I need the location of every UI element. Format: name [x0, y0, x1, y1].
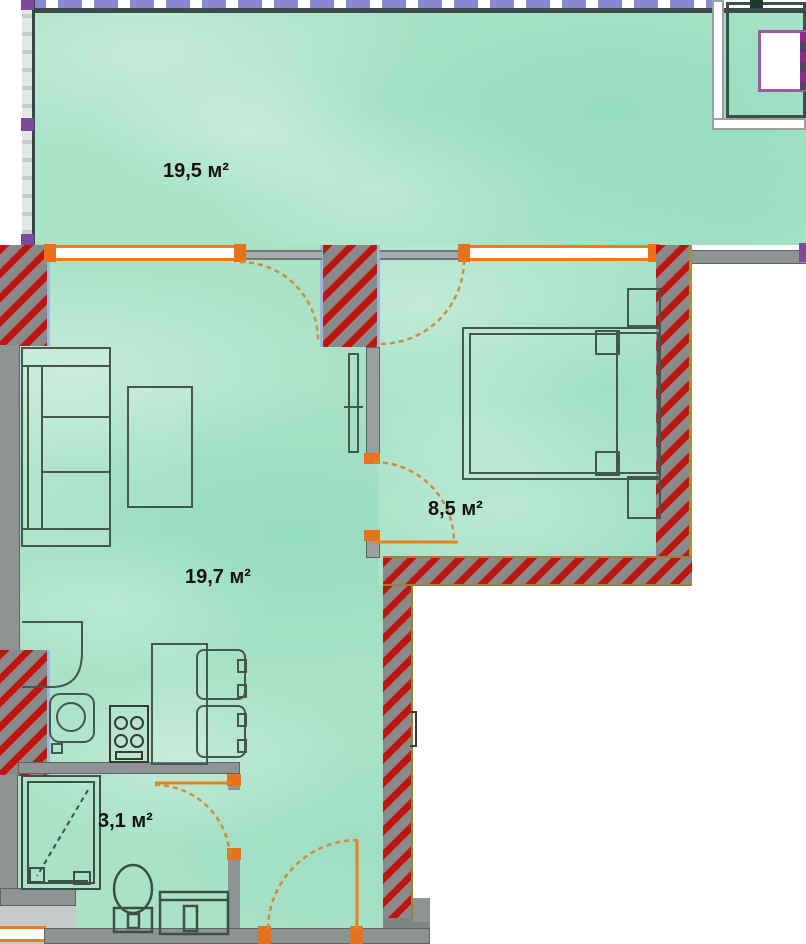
nightstand-top	[628, 289, 660, 326]
kitchen-counter	[22, 622, 82, 687]
balcony-door-swing-left	[240, 262, 318, 340]
room-area-label-bathroom: 3,1 м²	[98, 810, 153, 833]
washing-machine	[160, 892, 228, 934]
coffee-table	[128, 387, 192, 507]
door-swing-arcs	[155, 260, 464, 930]
room-area-label-terrace: 19,5 м²	[163, 160, 229, 183]
entrance-door-swing	[268, 840, 358, 930]
shower-tray	[22, 776, 100, 889]
stove	[110, 706, 148, 762]
kitchen-sink	[50, 694, 94, 753]
toilet	[114, 865, 152, 932]
wall-tick	[410, 712, 416, 746]
floor-plan: 19,5 м² 19,7 м² 8,5 м² 3,1 м²	[0, 0, 806, 944]
balcony-door-swing-right	[380, 260, 464, 344]
furniture-and-doors-layer	[0, 0, 806, 944]
room-area-label-living: 19,7 м²	[185, 566, 251, 589]
bed	[463, 328, 660, 479]
nightstand-bottom	[628, 477, 660, 518]
room-area-label-bedroom: 8,5 м²	[428, 498, 483, 521]
bathroom-door-swing	[155, 785, 230, 860]
dining-table	[152, 644, 207, 764]
tv-unit	[344, 354, 363, 452]
sofa	[22, 348, 110, 546]
